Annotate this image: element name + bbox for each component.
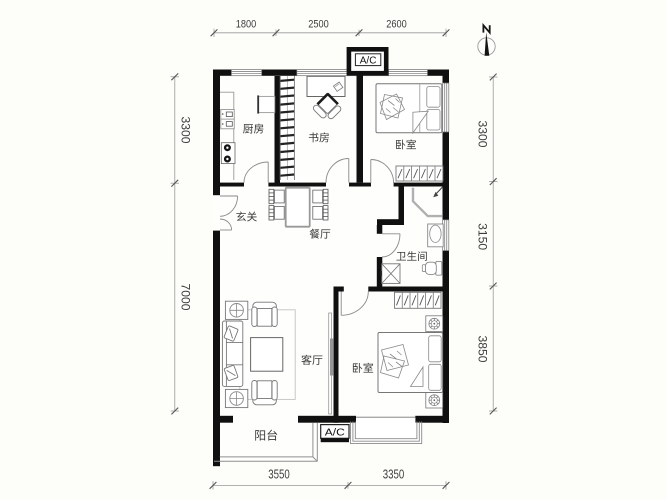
svg-text:3350: 3350: [383, 468, 405, 482]
svg-text:1800: 1800: [236, 18, 257, 30]
svg-text:3300: 3300: [475, 121, 487, 148]
svg-text:3150: 3150: [475, 223, 487, 250]
svg-text:2500: 2500: [308, 18, 329, 30]
svg-text:3300: 3300: [179, 117, 191, 144]
svg-text:3550: 3550: [268, 468, 290, 482]
svg-text:A/C: A/C: [360, 55, 377, 66]
svg-text:2600: 2600: [386, 18, 407, 30]
svg-text:A/C: A/C: [325, 426, 345, 438]
svg-text:3850: 3850: [475, 336, 487, 363]
svg-text:7000: 7000: [179, 284, 191, 311]
